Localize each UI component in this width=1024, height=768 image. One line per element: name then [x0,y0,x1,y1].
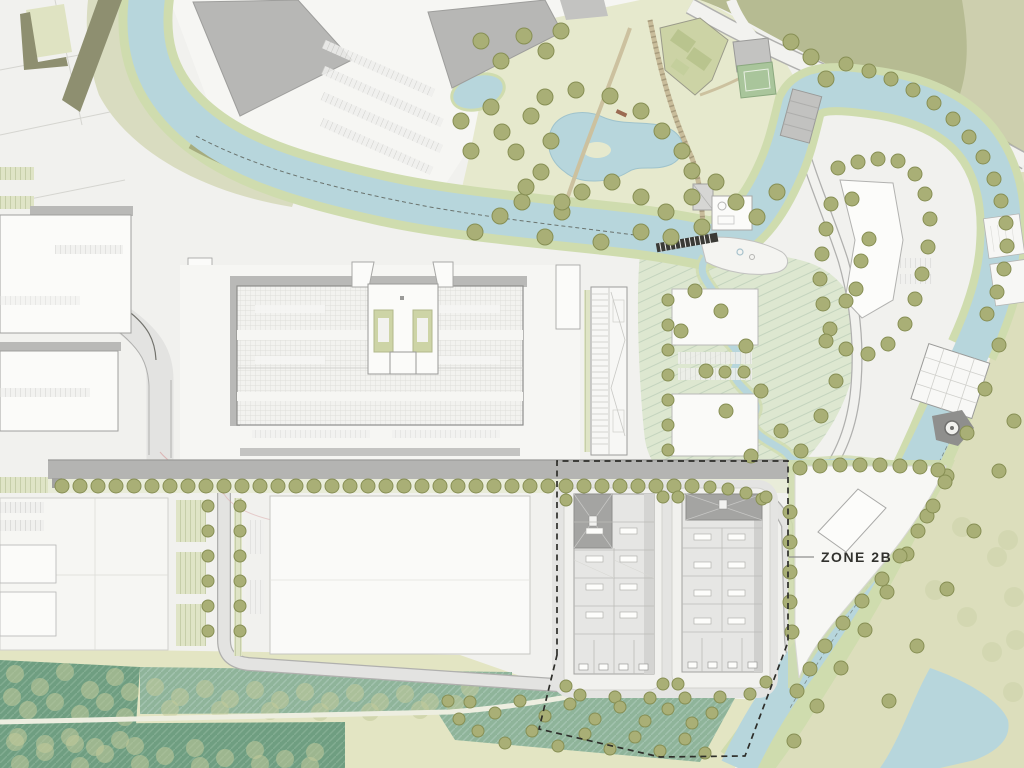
tower-building [556,265,580,329]
site-plan-map: ZONE 2B [0,0,1024,768]
factory-core [368,284,438,374]
warehouse-west-1 [0,215,131,333]
zone2b-building-west [574,494,654,674]
factory [180,262,580,460]
future-plot [270,496,530,654]
site-plan-page: ZONE 2B [0,0,1024,768]
zone-2b [552,480,778,698]
zone-2b-label: ZONE 2B [821,549,892,565]
zone2b-building-east [682,494,762,672]
sports-courts [733,38,776,98]
